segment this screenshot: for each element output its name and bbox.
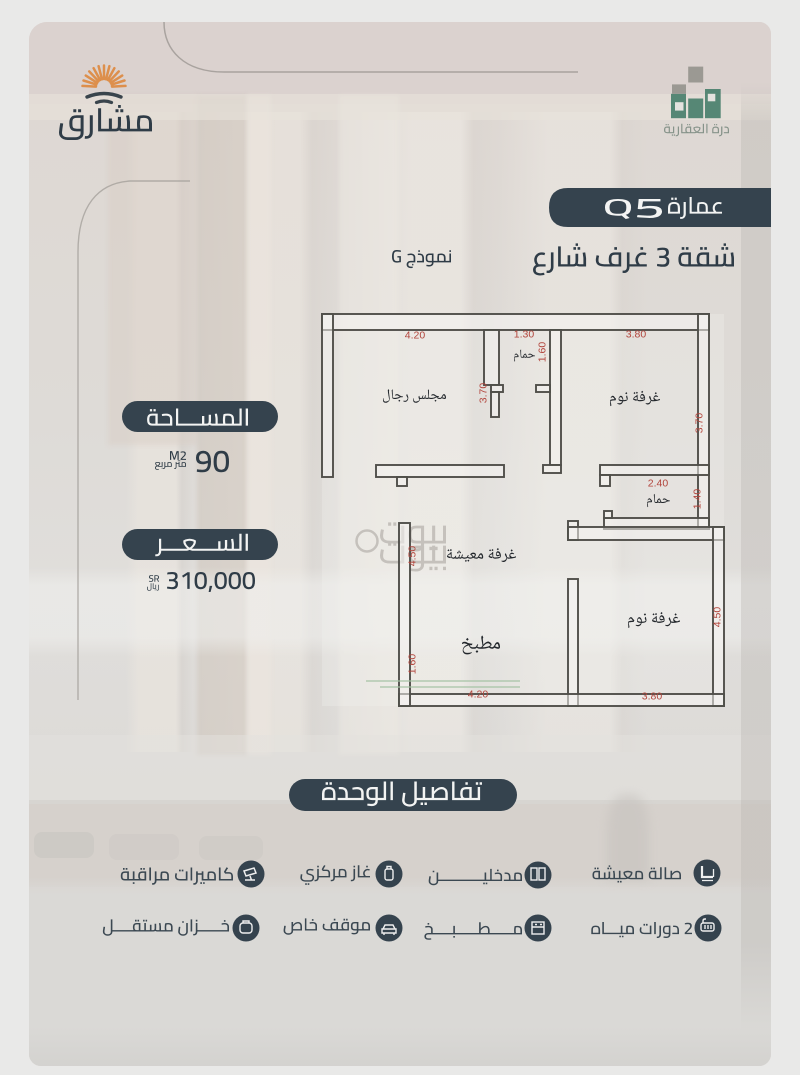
svg-text:3.80: 3.80 [626,329,647,341]
svg-text:4.20: 4.20 [468,689,489,701]
svg-text:3.70: 3.70 [478,383,490,404]
svg-text:4.50: 4.50 [712,607,724,628]
svg-text:1.60: 1.60 [537,342,549,363]
svg-text:3.80: 3.80 [642,691,663,703]
svg-text:1.40: 1.40 [692,489,704,510]
svg-text:3.70: 3.70 [694,413,706,434]
svg-text:1.60: 1.60 [407,654,419,675]
svg-text:4.20: 4.20 [405,330,426,342]
svg-text:1.30: 1.30 [514,329,535,341]
svg-text:4.50: 4.50 [407,546,419,567]
svg-text:2.40: 2.40 [648,478,669,490]
